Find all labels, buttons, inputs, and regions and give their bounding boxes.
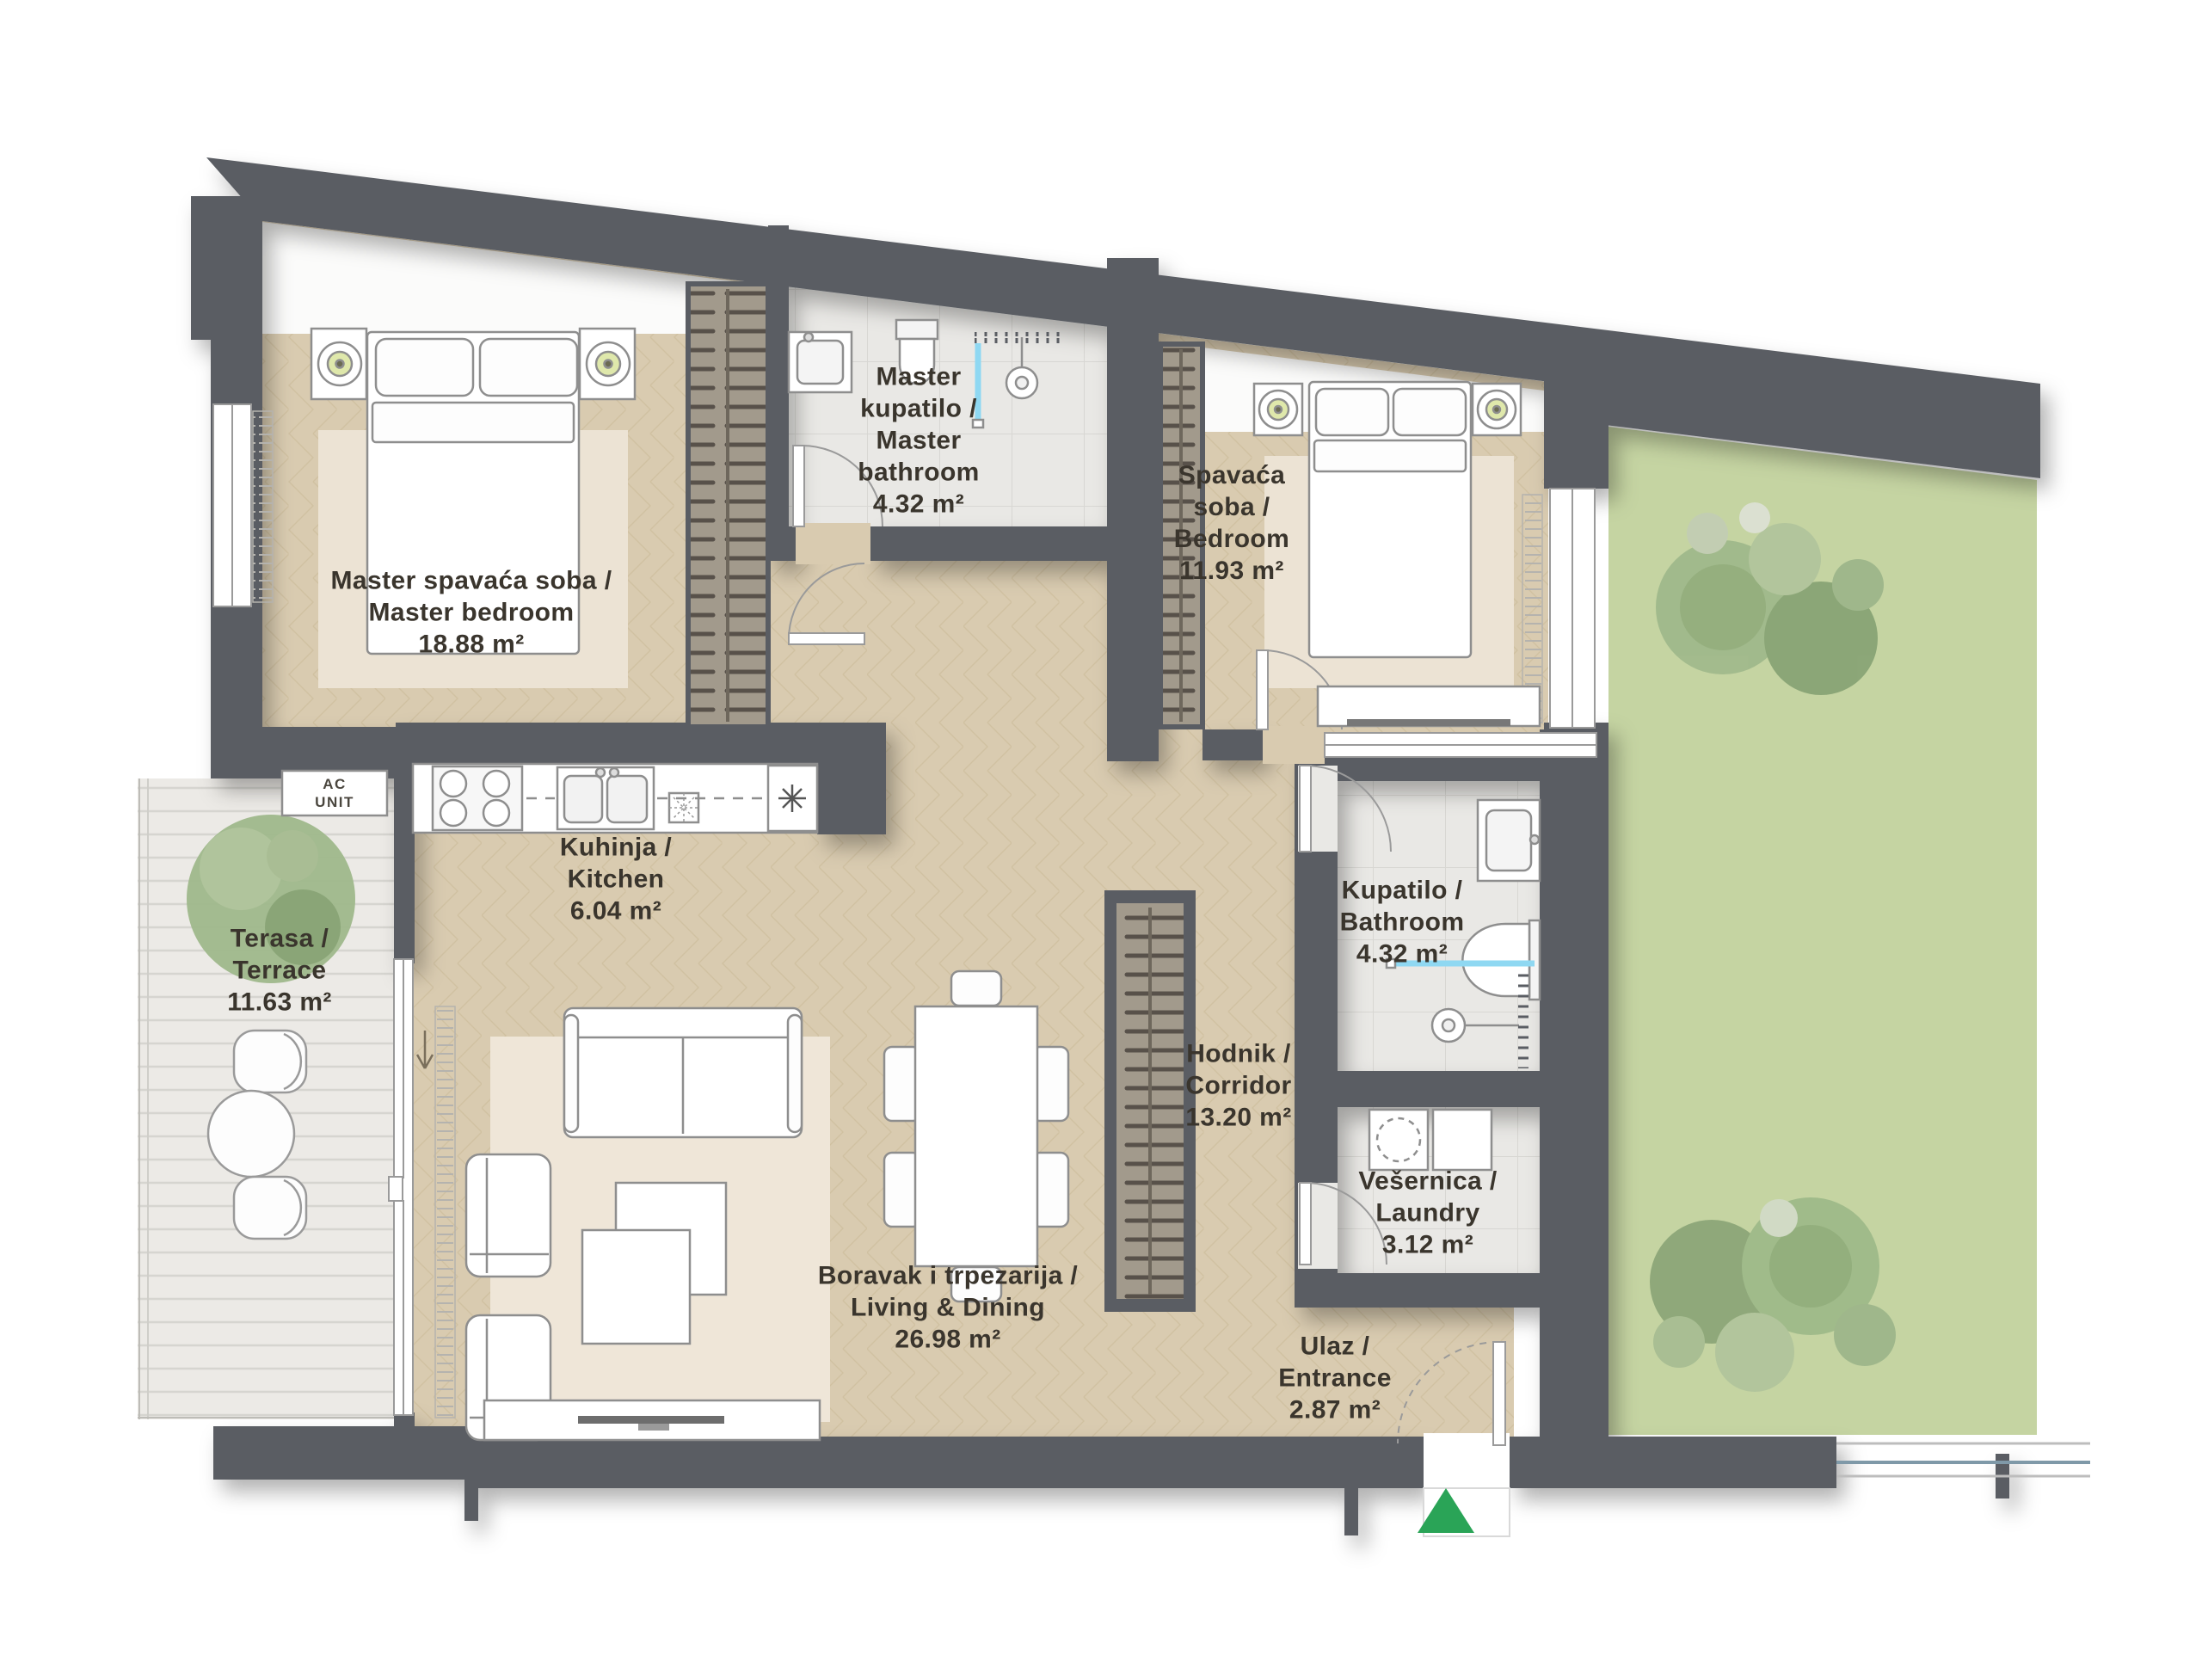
room-name-line: Hodnik / <box>1185 1038 1291 1070</box>
room-name-line: Corridor <box>1185 1070 1291 1102</box>
room-name-line: Entrance <box>1278 1363 1392 1394</box>
room-area: 2.87 m² <box>1278 1394 1392 1426</box>
master-bathroom-west-wall <box>768 225 789 561</box>
room-label-kitchen: Kuhinja / Kitchen 6.04 m² <box>560 832 672 927</box>
sink-icon <box>557 767 654 829</box>
terrace-chair-2 <box>234 1177 306 1239</box>
room-name-line: Terrace <box>227 955 332 987</box>
room-name-line: Bedroom <box>1174 523 1289 555</box>
room-name-line: soba / <box>1174 491 1289 523</box>
room-area: 18.88 m² <box>331 629 612 661</box>
bedroom-east-window <box>1550 489 1595 728</box>
south-wall-pier-2 <box>1344 1488 1358 1535</box>
room-name-line: Master spavaća soba / <box>331 565 612 597</box>
fridge-icon <box>768 766 817 831</box>
dining-table <box>915 1006 1037 1266</box>
dryer-icon <box>1433 1110 1492 1170</box>
bedroom-south-window <box>1325 733 1596 757</box>
ac-unit-label: AC UNIT <box>315 775 354 811</box>
room-name-line: Bathroom <box>1340 907 1465 938</box>
bed <box>1309 382 1471 657</box>
room-name-line: Living & Dining <box>818 1292 1078 1324</box>
nightstand-right <box>580 329 635 399</box>
room-name-line: Spavaća <box>1174 459 1289 491</box>
stove-icon <box>433 766 522 830</box>
nightstand-left <box>1254 384 1302 435</box>
room-label-terrace: Terasa / Terrace 11.63 m² <box>227 923 332 1018</box>
room-name-line: Ulaz / <box>1278 1331 1392 1363</box>
corridor-wardrobe <box>1104 890 1196 1312</box>
garden <box>1608 427 2037 1435</box>
room-area: 4.32 m² <box>1340 938 1465 970</box>
south-wall-pier-1 <box>464 1480 478 1521</box>
kitchen-counter <box>413 764 817 833</box>
nightstand-left <box>311 329 366 399</box>
floor-plan: Master spavaća soba / Master bedroom 18.… <box>0 0 2202 1680</box>
room-area: 3.12 m² <box>1358 1229 1497 1261</box>
dresser <box>1318 686 1540 726</box>
south-wall-east <box>1510 1437 1836 1488</box>
room-label-master-bedroom: Master spavaća soba / Master bedroom 18.… <box>331 565 612 661</box>
east-wall <box>1540 729 1608 1488</box>
floor-plan-drawing <box>0 0 2202 1680</box>
room-label-entrance: Ulaz / Entrance 2.87 m² <box>1278 1331 1392 1426</box>
living-room-curtain <box>435 1006 455 1418</box>
room-name-line: Terasa / <box>227 923 332 955</box>
room-name-line: kupatilo / <box>858 393 980 425</box>
central-wall <box>1107 258 1159 761</box>
room-area: 6.04 m² <box>560 895 672 927</box>
room-name-line: Master bedroom <box>331 597 612 629</box>
room-name-line: Vešernica / <box>1358 1166 1497 1197</box>
garden-plants-bottom-icon <box>1650 1197 1896 1392</box>
master-bedroom-closet <box>688 284 768 727</box>
sofa <box>564 1008 802 1137</box>
room-label-living-dining: Boravak i trpezarija / Living & Dining 2… <box>818 1260 1078 1356</box>
room-area: 11.93 m² <box>1174 555 1289 587</box>
room-label-laundry: Vešernica / Laundry 3.12 m² <box>1358 1166 1497 1261</box>
room-label-bathroom: Kupatilo / Bathroom 4.32 m² <box>1340 875 1465 970</box>
room-name-line: Kitchen <box>560 864 672 895</box>
terrace-table <box>208 1091 294 1177</box>
room-label-bedroom: Spavaća soba / Bedroom 11.93 m² <box>1174 459 1289 587</box>
room-label-master-bathroom: Master kupatilo / Master bathroom 4.32 m… <box>858 361 980 520</box>
room-area: 4.32 m² <box>858 489 980 520</box>
master-bedroom-window <box>213 404 251 606</box>
tv-console <box>484 1400 820 1440</box>
nightstand-right <box>1473 384 1521 435</box>
garden-fence <box>1836 1443 2090 1476</box>
room-name-line: Kupatilo / <box>1340 875 1465 907</box>
master-bedroom-curtain <box>253 411 273 602</box>
armchair-1 <box>466 1154 550 1277</box>
ac-unit-line: AC <box>315 775 354 793</box>
living-west-wall-upper <box>394 761 415 963</box>
south-wall-terrace <box>213 1426 471 1480</box>
bathroom-laundry-divider-wall <box>1338 1071 1540 1107</box>
room-name-line: Master <box>858 361 980 393</box>
laundry-south-wall <box>1295 1273 1540 1308</box>
room-name-line: bathroom <box>858 457 980 489</box>
kitchen-east-wall <box>817 723 886 834</box>
room-name-line: Master <box>858 425 980 457</box>
sink-icon <box>1478 800 1540 881</box>
room-name-line: Boravak i trpezarija / <box>818 1260 1078 1292</box>
room-area: 13.20 m² <box>1185 1102 1291 1134</box>
room-area: 11.63 m² <box>227 987 332 1018</box>
south-wall-living <box>471 1437 1424 1488</box>
ac-unit-line: UNIT <box>315 793 354 811</box>
terrace-chair-1 <box>234 1031 306 1092</box>
bedroom-south-wall <box>1202 729 1263 760</box>
east-wall-upper <box>1544 368 1608 489</box>
sink-icon <box>789 332 852 392</box>
room-name-line: Kuhinja / <box>560 832 672 864</box>
room-area: 26.98 m² <box>818 1324 1078 1356</box>
room-label-corridor: Hodnik / Corridor 13.20 m² <box>1185 1038 1291 1134</box>
room-name-line: Laundry <box>1358 1197 1497 1229</box>
washing-machine-icon <box>1369 1110 1428 1170</box>
